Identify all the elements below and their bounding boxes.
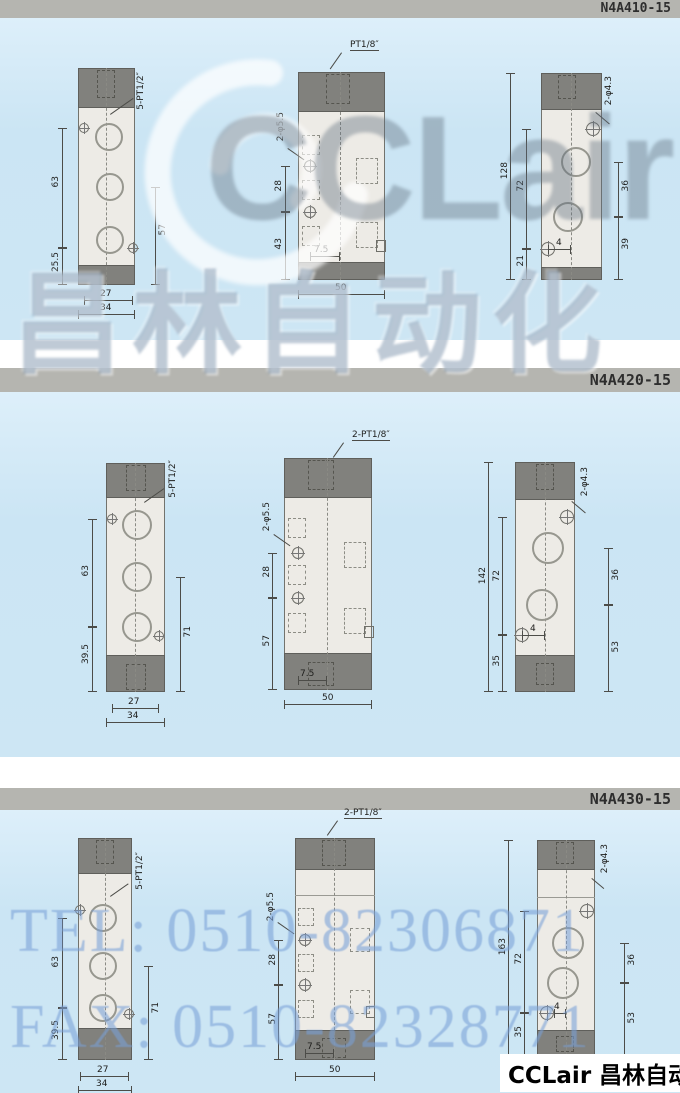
dim-label: 4 [554,1002,560,1012]
dimension-line [305,1053,334,1054]
dimension-line [522,635,545,636]
dim-label: 4 [530,624,536,634]
hole-diameter-label: 2-φ5.5 [266,892,276,921]
dimension-line [298,294,385,295]
dim-label: 128 [500,162,510,179]
mounting-hole-circle [292,592,304,604]
dimension-line [526,249,527,280]
dim-label: 71 [183,626,193,637]
dim-label: 4 [556,238,562,248]
dim-label: 28 [274,180,284,191]
dim-label: 39.5 [81,644,91,664]
port-hole-circle [122,562,152,592]
dimension-line [180,577,181,692]
dimension-line [310,256,340,257]
port-hole-circle [552,927,584,959]
hidden-thread-outline [344,608,366,634]
hidden-thread-outline [298,1000,314,1018]
dimension-line [78,1090,132,1091]
valve-front-view: 5-PT1/2″ 63 39.5 71 27 34 [50,830,220,1093]
dim-label: 50 [322,693,333,703]
dim-label: 57 [158,224,168,235]
dim-label: 34 [100,303,111,313]
dimension-line [502,635,503,692]
dim-label: 50 [329,1065,340,1075]
mounting-hole-circle [107,514,117,524]
dimension-line [62,918,63,1008]
dimension-line [78,314,135,315]
dimension-line [106,722,165,723]
valve-front-view: 5-PT1/2″ 63 39.5 71 27 34 [80,450,250,740]
port-dashed-outline [308,460,334,490]
valve-side-view: 2-PT1/8″ 2-φ5.5 28 57 7.5 50 [262,808,442,1093]
port-hole-circle [95,123,123,151]
hidden-thread-outline [302,180,320,200]
port-hole-circle [547,967,579,999]
dimension-line [526,129,527,249]
dimension-line [295,1076,375,1077]
detail-square [364,626,374,638]
dimension-line [618,217,619,280]
dimension-line [624,983,625,1055]
port-label: 2-PT1/8″ [352,430,390,441]
dim-label: 57 [262,635,272,646]
dim-label: 142 [478,567,488,584]
section-header-bar: N4A410-15 [0,0,680,18]
body-split-line [295,895,375,896]
dim-label: 36 [621,180,631,191]
leader-line [333,442,344,457]
section-header-bar: N4A420-15 [0,368,680,392]
port-hole-circle [122,612,152,642]
mounting-hole-circle [292,547,304,559]
hidden-thread-outline [356,222,378,248]
dimension-line [488,462,489,692]
dim-label: 34 [96,1079,107,1089]
dim-label: 43 [274,238,284,249]
port-hole-circle [553,202,583,232]
mounting-hole-circle [299,979,311,991]
dim-label: 39 [621,238,631,249]
center-line [340,72,341,280]
dim-label: 50 [335,283,346,293]
hidden-thread-outline [356,158,378,184]
dimension-line [84,300,133,301]
thread-label: 5-PT1/2″ [136,72,146,110]
dimension-line [155,187,156,285]
dim-label: 71 [151,1002,161,1013]
dimension-line [524,911,525,1013]
port-hole-circle [122,510,152,540]
dimension-line [285,212,286,280]
hole-diameter-label: 2-φ5.5 [276,112,286,141]
dimension-line [298,680,327,681]
dimension-line [112,708,159,709]
dimension-line [554,1013,566,1014]
dimension-line [272,598,273,690]
thread-label: 5-PT1/2″ [168,460,178,498]
hidden-thread-outline [298,908,314,926]
port-dashed-outline [126,664,146,690]
valve-back-view: 2-φ4.3 142 72 35 36 53 4 [478,455,678,705]
dimension-line [278,940,279,985]
hole-diameter-label: 2-φ4.3 [600,844,610,873]
center-line [545,462,546,692]
dim-label: 163 [498,938,508,955]
dimension-line [524,1013,525,1055]
port-dashed-outline [558,75,576,99]
dim-label: 7.5 [307,1042,321,1052]
hole-diameter-label: 2-φ5.5 [262,502,272,531]
mounting-hole-circle [304,160,316,172]
dim-label: 7.5 [300,669,314,679]
dim-label: 63 [51,956,61,967]
port-hole-circle [89,994,117,1022]
port-dashed-outline [326,74,350,104]
dimension-line [608,548,609,605]
thread-label: 5-PT1/2″ [135,852,145,890]
mounting-hole-circle [124,1009,134,1019]
port-hole-circle [89,952,117,980]
port-hole-circle [96,226,124,254]
mounting-hole-circle [75,905,85,915]
dimension-line [502,517,503,635]
mounting-hole-circle [586,122,600,136]
valve-front-view: 5-PT1/2″ 63 25.5 57 27 34 [50,60,215,322]
valve-side-view: 2-PT1/8″ 2-φ5.5 28 57 7.5 50 [260,430,440,722]
center-line [334,838,335,1060]
dimension-line [285,166,286,212]
dim-label: 28 [268,954,278,965]
mounting-hole-circle [154,631,164,641]
dim-label: 35 [492,655,502,666]
hole-diameter-label: 2-φ4.3 [580,467,590,496]
leader-line [330,52,342,69]
detail-square [376,240,386,252]
dimension-line [62,248,63,285]
dim-label: 36 [611,569,621,580]
dimension-line [618,162,619,217]
dimension-line [62,128,63,248]
dim-label: 25.5 [51,252,61,272]
mounting-hole-circle [304,206,316,218]
dim-label: 72 [514,953,524,964]
hidden-thread-outline [288,518,306,538]
mounting-hole-circle [79,123,89,133]
footer-brand-text: CCLair 昌林自动化 [500,1054,680,1092]
port-hole-circle [561,147,591,177]
dimension-line [510,73,511,280]
mounting-hole-circle [560,510,574,524]
dimension-line [608,605,609,692]
valve-back-view: 2-φ4.3 128 72 21 36 39 4 [500,50,680,300]
leader-line [327,820,338,835]
catalog-page: N4A410-15 N4A420-15 N4A430-15 5-PT1/2″ 6… [0,0,680,1093]
center-line [105,838,106,1060]
dimension-line [62,1008,63,1060]
dimension-line [272,553,273,598]
dim-label: 53 [627,1012,637,1023]
mounting-hole-circle [580,904,594,918]
hidden-thread-outline [302,226,320,246]
dimension-line [508,840,509,1055]
port-hole-circle [526,589,558,621]
hidden-thread-outline [288,613,306,633]
hidden-thread-outline [288,565,306,585]
port-dashed-outline [556,1036,574,1052]
port-hole-circle [89,904,117,932]
mounting-hole-circle [540,1006,554,1020]
leader-line [277,922,294,934]
dim-label: 72 [516,180,526,191]
dimension-line [92,627,93,692]
valve-side-view: PT1/8″ 2-φ5.5 28 43 7.5 50 [272,40,452,315]
dimension-line [80,1076,129,1077]
port-dashed-outline [126,465,146,491]
dim-label: 28 [262,566,272,577]
port-label: 2-PT1/8″ [344,808,382,819]
port-label: PT1/8″ [350,40,379,51]
dimension-line [92,519,93,627]
dimension-line [284,704,372,705]
dim-label: 63 [81,565,91,576]
mounting-hole-circle [128,243,138,253]
dim-label: 34 [127,711,138,721]
dimension-line [148,966,149,1060]
center-line [327,458,328,690]
dim-label: 63 [51,176,61,187]
dim-label: 7.5 [314,245,328,255]
hidden-thread-outline [302,135,320,155]
dim-label: 39.5 [51,1020,61,1040]
dim-label: 27 [100,289,111,299]
model-number: N4A410-15 [601,1,671,16]
mounting-hole-circle [299,934,311,946]
dimension-line [548,249,571,250]
end-cap-bottom [298,262,385,280]
port-dashed-outline [556,842,574,864]
model-number: N4A430-15 [590,790,671,808]
dim-label: 21 [516,255,526,266]
dim-label: 57 [268,1013,278,1024]
port-hole-circle [532,532,564,564]
hole-diameter-label: 2-φ4.3 [604,76,614,105]
hidden-thread-outline [344,542,366,568]
dim-label: 35 [514,1026,524,1037]
detail-square [366,1006,375,1018]
dim-label: 53 [611,641,621,652]
dim-label: 72 [492,570,502,581]
dim-label: 27 [97,1065,108,1075]
hidden-thread-outline [298,954,314,972]
hidden-thread-outline [350,928,370,952]
dimension-line [278,985,279,1060]
section-header-bar: N4A430-15 [0,788,680,810]
port-hole-circle [96,173,124,201]
model-number: N4A420-15 [590,371,671,389]
dimension-line [624,943,625,983]
dim-label: 27 [128,697,139,707]
dim-label: 36 [627,954,637,965]
